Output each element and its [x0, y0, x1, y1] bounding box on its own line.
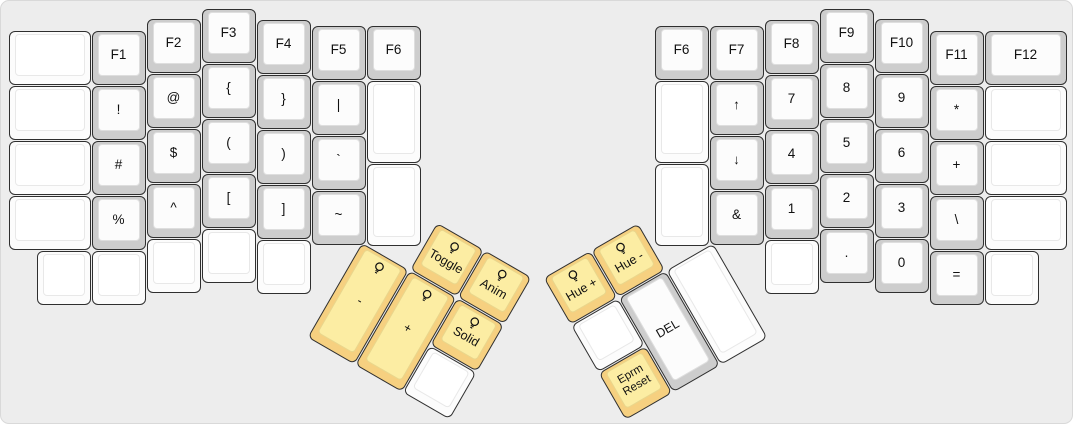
- key-label: 7: [788, 91, 796, 107]
- keycap-top: *: [936, 89, 978, 131]
- keycap-top: F7: [716, 29, 758, 71]
- keycap-top: 2: [826, 177, 868, 219]
- key-label: F5: [331, 42, 347, 58]
- keycap-top: F3: [208, 12, 250, 54]
- key-blank[interactable]: [202, 229, 256, 283]
- key-equals[interactable]: =: [930, 251, 984, 305]
- key-0[interactable]: 0: [875, 239, 929, 293]
- key-at[interactable]: @: [147, 74, 201, 128]
- keycap-top: ]: [263, 188, 305, 230]
- keycap-top: ~: [318, 194, 360, 236]
- key-label: `: [336, 152, 341, 168]
- keyboard-layout-view: ToggleAnim-+Solid Hue +Hue -DELEprm Rese…: [0, 0, 1073, 424]
- keycap-top: F11: [936, 34, 978, 76]
- keycap-top: [991, 89, 1061, 131]
- key-label: F7: [729, 42, 745, 58]
- keycap-top: 0: [881, 242, 923, 284]
- keycap-top: [661, 84, 703, 154]
- keycap-top: 1: [771, 188, 813, 230]
- key-5[interactable]: 5: [820, 119, 874, 173]
- keycap-top: [991, 144, 1061, 186]
- keycap-top: Hue -: [597, 229, 654, 286]
- key-label: ^: [170, 200, 176, 216]
- key-blank[interactable]: [765, 240, 819, 294]
- key-label: 9: [898, 90, 906, 106]
- key-3[interactable]: 3: [875, 184, 929, 238]
- key-label: F2: [166, 35, 182, 51]
- key-label: 4: [788, 146, 796, 162]
- key-label: 5: [843, 135, 851, 151]
- key-label: 1: [788, 201, 796, 217]
- key-f9[interactable]: F9: [820, 9, 874, 63]
- key-blank[interactable]: [257, 240, 311, 294]
- key-label: ↑: [733, 97, 740, 113]
- keycap-top: [208, 232, 250, 274]
- key-label: =: [953, 267, 961, 283]
- keycap-top: [771, 243, 813, 285]
- key-label: 8: [843, 80, 851, 96]
- keycap-top: F4: [263, 23, 305, 65]
- keycap-top: 7: [771, 78, 813, 120]
- keycap-top: ↓: [716, 139, 758, 181]
- key-f11[interactable]: F11: [930, 31, 984, 85]
- keycap-top: [661, 167, 703, 237]
- keycap-top: [15, 89, 85, 131]
- key-pipe[interactable]: |: [312, 81, 366, 135]
- key-blank[interactable]: [9, 141, 91, 195]
- keycap-top: [373, 84, 415, 154]
- key-hash[interactable]: #: [92, 141, 146, 195]
- key-right-brace[interactable]: }: [257, 75, 311, 129]
- keycap-top: =: [936, 254, 978, 296]
- key-plus[interactable]: +: [930, 141, 984, 195]
- key-backtick[interactable]: `: [312, 136, 366, 190]
- keycap-top: 5: [826, 122, 868, 164]
- key-f7[interactable]: F7: [710, 26, 764, 80]
- key-down-arrow[interactable]: ↓: [710, 136, 764, 190]
- key-label: 6: [898, 145, 906, 161]
- keycap-top: (: [208, 122, 250, 164]
- key-label: ~: [335, 207, 343, 223]
- keycap-top: [263, 243, 305, 285]
- key-blank[interactable]: [9, 196, 91, 250]
- keycap-top: `: [318, 139, 360, 181]
- keycap-top: [15, 34, 85, 76]
- key-f6-right[interactable]: F6: [655, 26, 709, 80]
- key-label: +: [953, 157, 961, 173]
- keycap-top: {: [208, 67, 250, 109]
- key-exclamation[interactable]: !: [92, 86, 146, 140]
- keycap-top: +: [936, 144, 978, 186]
- keycap-top: F12: [991, 34, 1061, 76]
- keycap-top: [43, 254, 85, 296]
- key-6[interactable]: 6: [875, 129, 929, 183]
- key-blank[interactable]: [9, 31, 91, 85]
- key-blank[interactable]: [985, 86, 1067, 140]
- key-blank[interactable]: [9, 86, 91, 140]
- key-label: F4: [276, 36, 292, 52]
- keycap-top: Hue +: [550, 256, 607, 313]
- key-period[interactable]: .: [820, 229, 874, 283]
- keycap-top: 6: [881, 132, 923, 174]
- key-label: -: [354, 294, 365, 309]
- key-1[interactable]: 1: [765, 185, 819, 239]
- keycap-top: [: [208, 177, 250, 219]
- keyboard-case: ToggleAnim-+Solid Hue +Hue -DELEprm Rese…: [0, 0, 1073, 424]
- key-tilde[interactable]: ~: [312, 191, 366, 245]
- keycap-top: \: [936, 199, 978, 241]
- keycap-top: 8: [826, 67, 868, 109]
- keycap-top: [373, 167, 415, 237]
- key-label: #: [115, 157, 123, 173]
- key-f1[interactable]: F1: [92, 31, 146, 85]
- key-label: +: [400, 321, 414, 337]
- key-blank[interactable]: [655, 164, 709, 246]
- key-up-arrow[interactable]: ↑: [710, 81, 764, 135]
- keycap-top: [15, 144, 85, 186]
- key-label: F6: [674, 42, 690, 58]
- key-percent[interactable]: %: [92, 196, 146, 250]
- key-label: ↓: [733, 152, 740, 168]
- key-label: F11: [945, 47, 967, 63]
- key-right-paren[interactable]: ): [257, 130, 311, 184]
- key-label: 2: [843, 190, 851, 206]
- key-blank[interactable]: [92, 251, 146, 305]
- keycap-top: |: [318, 84, 360, 126]
- key-label: @: [167, 90, 181, 106]
- key-dollar[interactable]: $: [147, 129, 201, 183]
- keycap-top: [15, 199, 85, 241]
- key-4[interactable]: 4: [765, 130, 819, 184]
- lightbulb-icon: [417, 287, 434, 305]
- keycap-top: ^: [153, 187, 195, 229]
- keycap-top: .: [826, 232, 868, 274]
- key-label: {: [226, 80, 231, 96]
- key-f10[interactable]: F10: [875, 19, 929, 73]
- key-blank[interactable]: [367, 164, 421, 246]
- key-label: \: [955, 212, 959, 228]
- key-8[interactable]: 8: [820, 64, 874, 118]
- keycap-top: F6: [373, 29, 415, 71]
- keycap-top: #: [98, 144, 140, 186]
- keycap-top: F5: [318, 29, 360, 71]
- key-blank[interactable]: [147, 239, 201, 293]
- key-caret[interactable]: ^: [147, 184, 201, 238]
- key-label: %: [112, 212, 124, 228]
- key-label: F8: [784, 36, 800, 52]
- key-label: F9: [839, 25, 855, 41]
- key-9[interactable]: 9: [875, 74, 929, 128]
- key-f12[interactable]: F12: [985, 31, 1067, 85]
- key-f2[interactable]: F2: [147, 19, 201, 73]
- key-label: ]: [282, 201, 286, 217]
- key-label: F12: [1014, 47, 1037, 63]
- key-label: |: [337, 97, 341, 113]
- key-label: F10: [890, 35, 913, 51]
- key-blank[interactable]: [985, 251, 1039, 305]
- keycap-top: $: [153, 132, 195, 174]
- keycap-top: %: [98, 199, 140, 241]
- key-label: .: [845, 245, 849, 261]
- keycap-top: ↑: [716, 84, 758, 126]
- key-asterisk[interactable]: *: [930, 86, 984, 140]
- keycap-top: !: [98, 89, 140, 131]
- keycap-top: [98, 254, 140, 296]
- key-blank[interactable]: [367, 81, 421, 163]
- key-label: (: [226, 135, 231, 151]
- key-left-paren[interactable]: (: [202, 119, 256, 173]
- key-blank[interactable]: [655, 81, 709, 163]
- keycap-top: 9: [881, 77, 923, 119]
- key-right-bracket[interactable]: ]: [257, 185, 311, 239]
- keycap-top: &: [716, 194, 758, 236]
- key-2[interactable]: 2: [820, 174, 874, 228]
- key-blank[interactable]: [37, 251, 91, 305]
- key-label: $: [170, 145, 178, 161]
- keycap-top: F1: [98, 34, 140, 76]
- keycap-top: 3: [881, 187, 923, 229]
- key-left-bracket[interactable]: [: [202, 174, 256, 228]
- keycap-top: ): [263, 133, 305, 175]
- keycap-top: [991, 199, 1061, 241]
- keycap-top: [153, 242, 195, 284]
- key-f5[interactable]: F5: [312, 26, 366, 80]
- key-label: F6: [386, 42, 402, 58]
- key-label: 3: [898, 200, 906, 216]
- keycap-top: F10: [881, 22, 923, 64]
- keycap-top: F8: [771, 23, 813, 65]
- key-label: Eprm Reset: [614, 361, 653, 399]
- keycap-top: F2: [153, 22, 195, 64]
- key-label: }: [281, 91, 286, 107]
- key-blank[interactable]: [985, 196, 1067, 250]
- keycap-top: 4: [771, 133, 813, 175]
- key-label: [: [227, 190, 231, 206]
- lightbulb-icon: [370, 260, 387, 278]
- key-label: !: [117, 102, 121, 118]
- keycap-top: }: [263, 78, 305, 120]
- key-label: DEL: [653, 317, 681, 342]
- key-label: F3: [221, 25, 237, 41]
- keycap-top: F9: [826, 12, 868, 54]
- keycap-top: [991, 254, 1033, 296]
- key-ampersand[interactable]: &: [710, 191, 764, 245]
- key-f3[interactable]: F3: [202, 9, 256, 63]
- keycap-top: Anim: [467, 256, 524, 313]
- key-label: &: [732, 207, 741, 223]
- key-label: *: [954, 102, 959, 118]
- keycap-top: @: [153, 77, 195, 119]
- key-7[interactable]: 7: [765, 75, 819, 129]
- key-label: 0: [898, 255, 906, 271]
- key-f8[interactable]: F8: [765, 20, 819, 74]
- key-blank[interactable]: [985, 141, 1067, 195]
- keycap-top: F6: [661, 29, 703, 71]
- key-label: ): [281, 146, 286, 162]
- key-backslash[interactable]: \: [930, 196, 984, 250]
- key-f6-left[interactable]: F6: [367, 26, 421, 80]
- key-f4[interactable]: F4: [257, 20, 311, 74]
- key-label: F1: [111, 47, 127, 63]
- key-left-brace[interactable]: {: [202, 64, 256, 118]
